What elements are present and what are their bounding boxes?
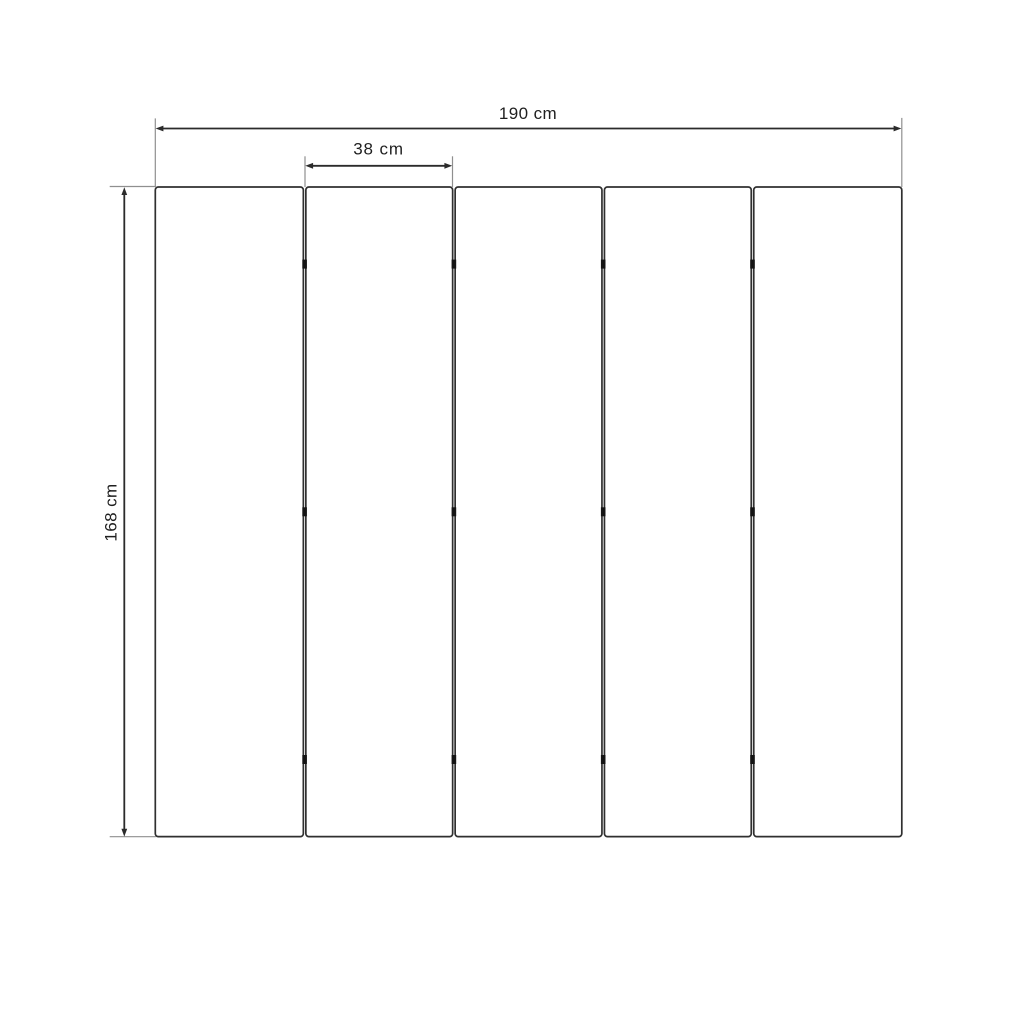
svg-text:38 cm: 38 cm <box>353 140 404 159</box>
svg-text:190 cm: 190 cm <box>499 104 557 123</box>
svg-text:168 cm: 168 cm <box>102 483 121 541</box>
